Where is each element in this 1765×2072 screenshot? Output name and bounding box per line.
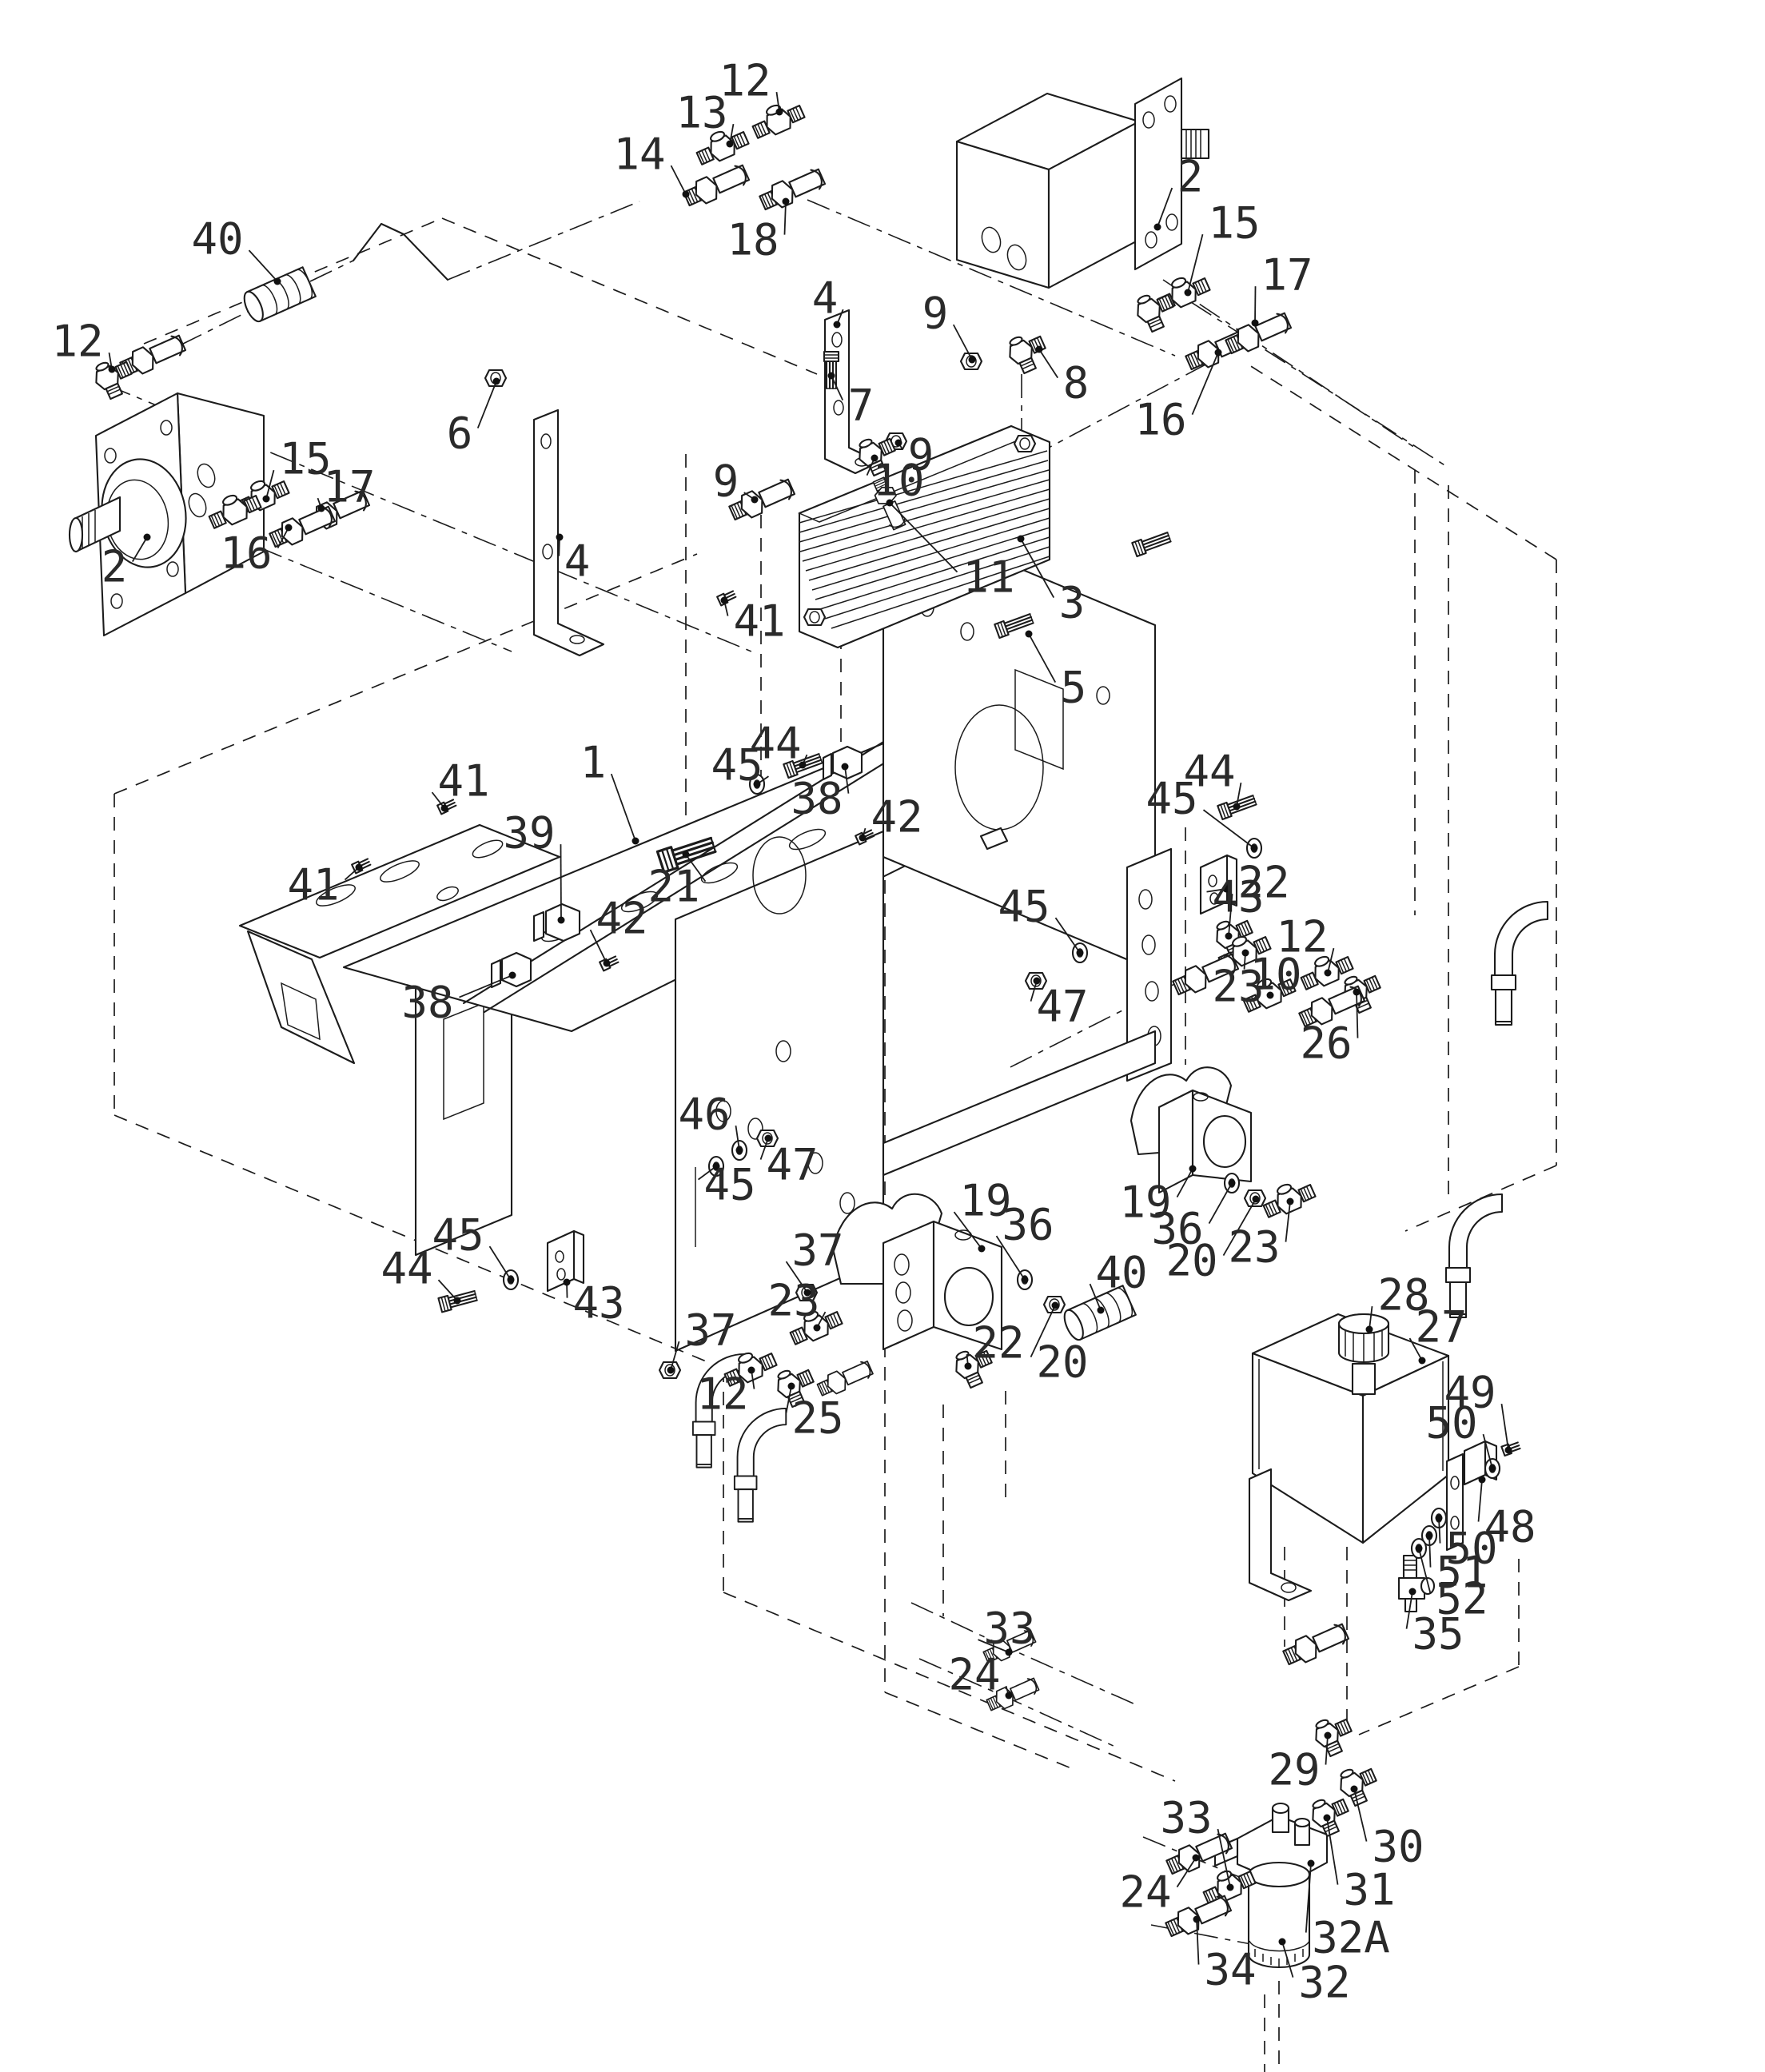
leader-dot [1018, 536, 1025, 543]
callout-number: 32A [1312, 1912, 1390, 1962]
callout-number: 40 [191, 213, 243, 264]
callout-17: 17 [318, 461, 376, 512]
leader-dot [1325, 1732, 1332, 1739]
leader-dot [1022, 1277, 1029, 1284]
callout-45: 45 [699, 1159, 756, 1209]
callout-number: 12 [51, 316, 103, 366]
leader-dot [556, 534, 564, 541]
leader-dot [558, 917, 565, 924]
leader-dot [1416, 1545, 1423, 1552]
leader-dot [1077, 950, 1084, 957]
callout-1: 1 [580, 737, 639, 844]
callout-number: 29 [1268, 1744, 1320, 1795]
callout-41: 41 [721, 596, 786, 646]
callout-number: 4 [812, 273, 839, 323]
callout-number: 20 [1165, 1235, 1217, 1285]
callout-47: 47 [761, 1135, 819, 1190]
callout-18: 18 [727, 198, 789, 265]
leader-dot [1253, 1196, 1260, 1203]
callout-number: 8 [1063, 357, 1090, 408]
hydraulic-motor-right [957, 78, 1209, 288]
callout-8: 8 [1036, 346, 1090, 408]
callout-number: 17 [323, 461, 375, 512]
callout-number: 46 [678, 1089, 730, 1139]
callout-number: 42 [871, 791, 922, 842]
leader-dot [1325, 970, 1332, 977]
leader-dot [1324, 1815, 1331, 1822]
callout-number: 36 [1002, 1199, 1054, 1249]
callout-number: 50 [1425, 1397, 1477, 1448]
leader-line [560, 844, 561, 920]
leader-line [249, 250, 277, 281]
leader-line [1479, 1480, 1482, 1522]
leader-dot [1252, 320, 1259, 327]
callout-45: 45 [711, 739, 768, 790]
callout-40: 40 [191, 213, 281, 285]
callout-number: 1 [580, 737, 607, 787]
callout-number: 38 [401, 977, 453, 1027]
leader-dot [1308, 1860, 1315, 1867]
leader-dot [1229, 1180, 1236, 1187]
leader-dot [842, 763, 849, 771]
callout-number: 5 [1061, 662, 1087, 712]
callout-9: 9 [922, 288, 976, 363]
leader-dot [493, 378, 500, 385]
parts-diagram: 1213141821517164012215171664798910941135… [0, 0, 1765, 2072]
leader-dot [144, 534, 151, 541]
callout-number: 14 [613, 129, 665, 179]
leader-line [612, 774, 635, 841]
leader-dot [1351, 1786, 1358, 1793]
leader-dot [263, 496, 270, 503]
leader-dot [1225, 933, 1233, 940]
callout-number: 12 [1276, 911, 1328, 962]
leader-dot [683, 191, 690, 198]
leader-dot [886, 500, 894, 507]
leader-dot [356, 864, 363, 871]
leader-dot [1426, 1532, 1433, 1540]
leader-dot [1489, 1465, 1496, 1472]
callout-number: 47 [1036, 981, 1088, 1031]
leader-dot [969, 357, 976, 364]
callout-number: 45 [432, 1209, 484, 1260]
callout-number: 6 [447, 408, 473, 458]
leader-dot [1185, 289, 1192, 297]
callout-23: 23 [767, 1275, 825, 1331]
leader-dot [1189, 1165, 1197, 1173]
leader-dot [1409, 1588, 1416, 1596]
port-nut [1014, 436, 1035, 452]
leader-dot [727, 141, 734, 148]
callout-number: 15 [1208, 197, 1260, 248]
callout-number: 22 [972, 1317, 1024, 1368]
leader-dot [721, 597, 728, 604]
leader-dot [1279, 1939, 1286, 1946]
callout-number: 27 [1415, 1301, 1467, 1352]
leader-dot [1026, 631, 1033, 638]
leader-dot [783, 198, 790, 205]
callout-number: 26 [1300, 1018, 1352, 1068]
leader-dot [109, 366, 116, 373]
callout-number: 3 [1059, 577, 1086, 628]
callout-number: 32 [1298, 1957, 1350, 2007]
leader-dot [978, 1245, 986, 1253]
callout-number: 12 [696, 1369, 748, 1419]
callout-33: 33 [978, 1603, 1036, 1656]
leader-dot [274, 278, 281, 285]
leader-dot [1436, 1515, 1443, 1522]
leader-line [478, 381, 496, 428]
callout-number: 16 [1134, 394, 1186, 444]
leader-dot [454, 1297, 461, 1305]
leader-dot [1193, 1855, 1200, 1862]
callout-number: 40 [1095, 1247, 1147, 1297]
callout-number: 47 [766, 1139, 818, 1189]
callout-number: 10 [872, 455, 924, 505]
leader-dot [776, 109, 783, 116]
callout-number: 35 [1412, 1608, 1464, 1659]
callout-number: 21 [647, 861, 699, 911]
leader-dot [1193, 1916, 1201, 1923]
callout-number: 7 [848, 380, 875, 430]
leader-dot [1215, 349, 1222, 357]
callout-number: 41 [287, 859, 339, 910]
leader-dot [1242, 950, 1249, 957]
leader-dot [1251, 845, 1258, 852]
leader-line [954, 325, 972, 360]
leader-dot [788, 1383, 795, 1390]
leader-dot [1052, 1302, 1059, 1309]
leader-line [671, 165, 686, 194]
callout-number: 42 [596, 893, 647, 943]
callout-number: 2 [102, 541, 128, 592]
leader-dot [1154, 224, 1161, 231]
callout-number: 37 [791, 1225, 843, 1275]
exploded-view-drawing: 1213141821517164012215171664798910941135… [0, 0, 1765, 2072]
tank-valve [1399, 1556, 1434, 1612]
callout-number: 4 [564, 536, 591, 586]
leader-line [1209, 1183, 1232, 1224]
leader-line [489, 1246, 511, 1280]
callout-number: 24 [948, 1649, 1000, 1699]
callout-45: 45 [432, 1209, 514, 1283]
leader-dot [828, 373, 835, 380]
callout-number: 43 [572, 1277, 624, 1328]
callout-number: 13 [675, 87, 727, 137]
leader-dot [1419, 1357, 1426, 1365]
callout-number: 34 [1204, 1944, 1256, 1994]
leader-dot [1366, 1326, 1373, 1333]
callout-number: 16 [220, 528, 272, 578]
bracket-short [534, 410, 604, 655]
leader-dot [1479, 1476, 1486, 1484]
callout-43: 43 [564, 1277, 625, 1328]
leader-line [1255, 286, 1256, 323]
callout-9: 9 [713, 456, 759, 506]
callout-number: 11 [962, 552, 1014, 602]
callout-number: 24 [1119, 1867, 1171, 1917]
callout-number: 37 [684, 1305, 736, 1355]
callout-number: 23 [767, 1275, 819, 1325]
callout-14: 14 [613, 129, 689, 197]
callout-number: 25 [791, 1393, 843, 1443]
callout-number: 9 [713, 456, 739, 506]
callout-number: 45 [711, 739, 763, 790]
leader-line [1039, 349, 1058, 378]
callout-12: 12 [696, 1367, 755, 1420]
leader-dot [1036, 346, 1043, 353]
callout-number: 20 [1036, 1337, 1088, 1387]
leader-dot [1505, 1447, 1512, 1454]
leader-dot [509, 972, 516, 979]
leader-dot [508, 1277, 515, 1284]
callout-number: 44 [380, 1243, 432, 1293]
callout-34: 34 [1193, 1916, 1257, 1995]
filter-canister [1249, 1863, 1309, 1967]
callout-47: 47 [1031, 978, 1089, 1032]
leader-dot [285, 524, 293, 532]
leader-dot [564, 1279, 571, 1286]
leader-dot [1267, 992, 1274, 999]
leader-dot [859, 835, 867, 842]
leader-dot [632, 838, 639, 845]
leader-dot [1287, 1198, 1294, 1205]
callout-number: 38 [791, 773, 843, 823]
leader-dot [1098, 1307, 1105, 1314]
leader-dot [683, 851, 690, 859]
callout-number: 33 [1160, 1792, 1212, 1843]
callout-4: 4 [556, 534, 591, 587]
callout-number: 45 [998, 881, 1050, 931]
leader-dot [895, 440, 902, 447]
leader-dot [748, 1367, 755, 1374]
callout-number: 41 [437, 755, 489, 806]
leader-dot [604, 960, 611, 967]
leader-dot [1353, 989, 1361, 996]
callout-number: 18 [727, 214, 779, 265]
leader-dot [965, 1363, 972, 1370]
callout-number: 31 [1343, 1864, 1395, 1915]
leader-dot [1006, 1692, 1013, 1699]
leader-dot [1233, 803, 1241, 811]
callout-number: 17 [1261, 249, 1313, 300]
leader-dot [736, 1147, 743, 1154]
leader-dot [667, 1367, 675, 1374]
leader-dot [751, 496, 759, 504]
callout-number: 22 [1237, 857, 1289, 907]
callout-number: 23 [1228, 1221, 1280, 1272]
callout-4: 4 [812, 273, 843, 328]
port-nut [804, 609, 825, 625]
callout-41: 41 [432, 755, 490, 811]
callout-6: 6 [447, 378, 500, 459]
callout-number: 33 [983, 1603, 1035, 1653]
callout-number: 39 [503, 807, 555, 858]
callout-number: 41 [733, 596, 785, 646]
callout-number: 9 [922, 288, 949, 338]
callout-number: 45 [703, 1159, 755, 1209]
callout-number: 23 [1212, 961, 1264, 1011]
leader-dot [1227, 1884, 1234, 1891]
callout-number: 2 [1177, 151, 1204, 201]
callout-10: 10 [867, 455, 925, 506]
callout-22: 22 [965, 1317, 1025, 1369]
leader-line [1501, 1404, 1508, 1450]
callout-number: 45 [1145, 773, 1197, 823]
